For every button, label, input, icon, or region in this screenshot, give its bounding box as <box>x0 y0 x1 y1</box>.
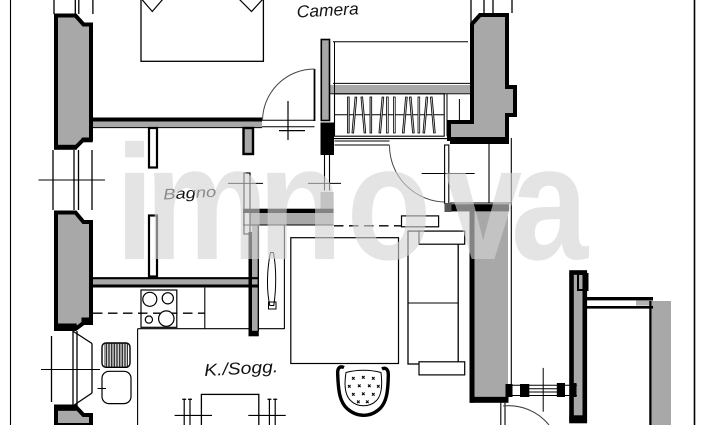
svg-text:imnova: imnova <box>115 112 589 294</box>
svg-text:Camera: Camera <box>296 0 359 21</box>
svg-text:K./Sogg.: K./Sogg. <box>204 357 279 380</box>
